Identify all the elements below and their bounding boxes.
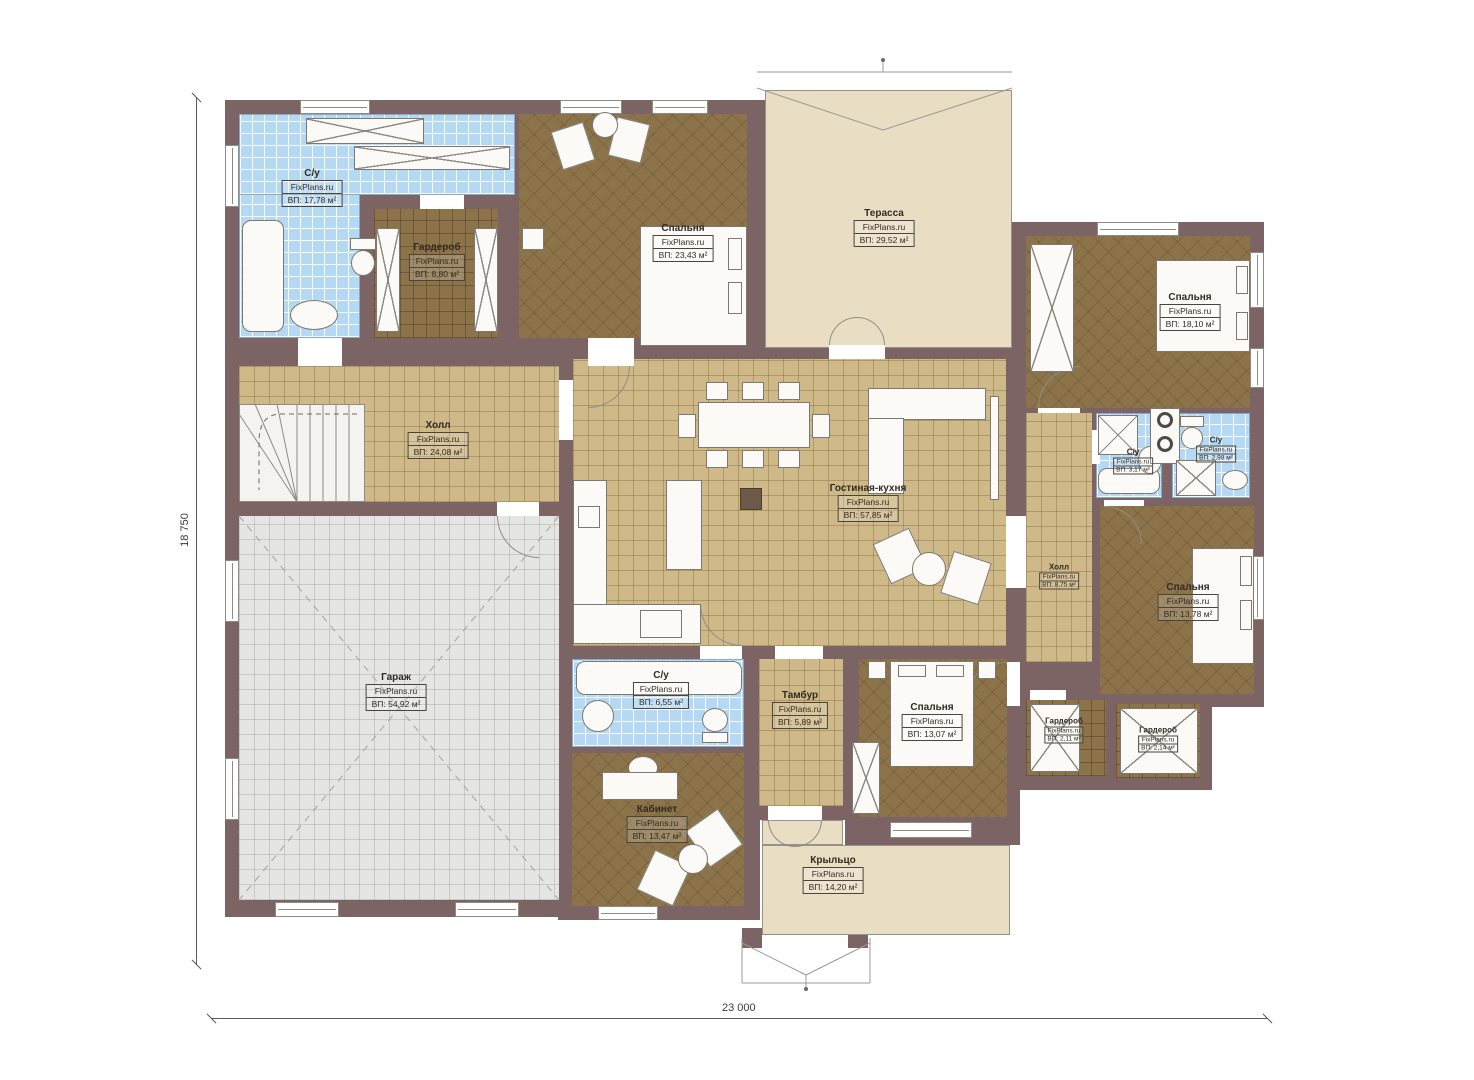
toilet-tank [350,238,376,250]
room-name: Кабинет [627,804,688,815]
wardrobe-cabinet [852,742,880,814]
chair [742,382,764,400]
room-name: С/у [1113,448,1153,457]
room-label-bathroom-655: С/у FixPlans.ruВП: 6,55 м² [633,670,689,710]
pillow [1236,312,1248,340]
staircase [239,404,365,502]
dining-table [698,402,810,448]
watermark: FixPlans.ru [1197,447,1235,455]
room-area: ВП: 2,14 м² [1139,745,1177,752]
toilet-bowl [351,250,375,276]
door-corridor-cabinet [700,646,742,659]
room-label-bathroom-298: С/у FixPlans.ruВП: 2,98 м² [1196,436,1236,465]
pillow [1236,266,1248,294]
room-area: ВП: 2,98 м² [1197,455,1235,462]
coffee-table [912,552,946,586]
room-area: ВП: 54,92 м² [367,698,426,710]
chair [706,382,728,400]
room-name: Гостиная-кухня [830,483,907,494]
watermark: FixPlans.ru [903,715,962,728]
window [300,100,370,114]
nightstand [978,661,996,679]
door-wardrobe-211 [1030,690,1066,700]
room-name: С/у [1196,436,1236,445]
opening-hall-living [559,380,573,440]
chair [678,414,696,438]
chair [778,450,800,468]
room-label-terrace: Терасса FixPlans.ruВП: 29,52 м² [854,208,915,248]
watermark: FixPlans.ru [628,817,687,830]
room-area: ВП: 24,08 м² [409,446,468,458]
watermark: FixPlans.ru [1040,574,1078,582]
room-area: ВП: 14,20 м² [804,881,863,893]
window [598,906,658,920]
porch-deck [762,845,1010,935]
nightstand [522,228,544,250]
watermark: FixPlans.ru [1045,728,1082,736]
closet [306,118,424,144]
tv-stand [990,396,999,500]
fireplace [740,488,762,510]
room-label-bathroom-1778: С/у FixPlans.ruВП: 17,78 м² [282,168,343,208]
room-area: ВП: 29,52 м² [855,234,914,246]
window [1250,252,1264,308]
kitchen-counter [573,480,607,606]
window [225,560,239,622]
room-label-hall-875: Холл FixPlans.ruВП: 8,75 м² [1039,563,1079,592]
room-name: Гардероб [1138,726,1178,735]
room-label-porch: Крыльцо FixPlans.ruВП: 14,20 м² [803,855,864,895]
room-label-tambour: Тамбур FixPlans.ruВП: 5,89 м² [772,690,828,730]
room-area: ВП: 5,89 м² [773,716,827,728]
room-label-cabinet: Кабинет FixPlans.ruВП: 13,47 м² [627,804,688,844]
window [225,145,239,207]
window [1250,348,1264,388]
wardrobe-cabinet [1030,244,1074,372]
pillow [936,665,964,677]
room-name: Гардероб [1044,717,1083,726]
sink [290,300,338,330]
room-area: ВП: 13,47 м² [628,830,687,842]
door-bedroom-1378 [1104,500,1144,506]
watermark: FixPlans.ru [839,496,898,509]
room-name: Холл [408,420,469,431]
door-tambour-living [775,646,823,659]
watermark: FixPlans.ru [409,433,468,446]
watermark: FixPlans.ru [367,685,426,698]
room-label-wardrobe-880: Гардероб FixPlans.ruВП: 8,80 м² [409,242,465,282]
closet [354,146,510,170]
opening-living-hall-right [1006,516,1026,588]
sink [582,700,614,732]
window [275,902,339,917]
room-area: ВП: 18,10 м² [1161,318,1220,330]
chair [742,450,764,468]
watermark: FixPlans.ru [1114,459,1152,467]
room-name: С/у [282,168,343,179]
floor-plan: С/у FixPlans.ruВП: 17,78 м² Гардероб Fix… [0,0,1474,1080]
room-name: Спальня [902,702,963,713]
wardrobe-cabinet [474,228,498,332]
room-label-bedroom-1378: Спальня FixPlans.ruВП: 13,78 м² [1158,582,1219,622]
watermark: FixPlans.ru [654,236,713,249]
watermark: FixPlans.ru [283,181,342,194]
washing-machine-drum [1157,412,1173,428]
floor-hall-875 [1026,413,1092,662]
window [1097,222,1179,236]
room-area: ВП: 8,80 м² [410,268,464,280]
pillow [1240,556,1252,586]
room-name: Холл [1039,563,1079,572]
sink [1222,470,1248,490]
room-area: ВП: 13,07 м² [903,728,962,740]
wardrobe-cabinet [376,228,400,332]
watermark: FixPlans.ru [634,683,688,696]
room-label-living-kitchen: Гостиная-кухня FixPlans.ruВП: 57,85 м² [830,483,907,523]
side-table [592,112,618,138]
kitchen-island [666,480,702,570]
bathtub [242,220,284,332]
watermark: FixPlans.ru [855,221,914,234]
room-name: С/у [633,670,689,681]
window [890,822,972,838]
desk [602,772,678,800]
watermark: FixPlans.ru [410,255,464,268]
door-bedroom-1810 [1038,408,1080,413]
door-wardrobe-880 [420,195,464,209]
kitchen-sink [578,506,600,528]
watermark: FixPlans.ru [1161,305,1220,318]
room-area: ВП: 17,78 м² [283,194,342,206]
nightstand [868,661,886,679]
coffee-table [678,844,708,874]
dimension-line-horizontal [211,1018,1267,1019]
room-area: ВП: 3,17 м² [1114,467,1152,474]
watermark: FixPlans.ru [804,868,863,881]
room-name: Терасса [854,208,915,219]
room-area: ВП: 8,75 м² [1040,582,1078,589]
room-name: Тамбур [772,690,828,701]
pillow [728,238,742,270]
room-label-bedroom-2343: Спальня FixPlans.ruВП: 23,43 м² [653,223,714,263]
chair [812,414,830,438]
pillow [1240,600,1252,630]
shower [1176,460,1216,496]
room-area: ВП: 13,78 м² [1159,608,1218,620]
stove [640,610,682,638]
door-terrace [829,345,885,359]
porch-roof-lines [735,925,880,997]
room-area: ВП: 2,11 м² [1045,736,1082,743]
toilet-tank [1180,416,1204,427]
chair [778,382,800,400]
watermark: FixPlans.ru [1139,737,1177,745]
room-name: Спальня [1158,582,1219,593]
watermark: FixPlans.ru [1159,595,1218,608]
dimension-height-label: 18 750 [179,513,191,547]
window [455,902,519,917]
door-bathroom-master [298,338,342,366]
window [560,100,622,114]
room-label-hall-2408: Холл FixPlans.ruВП: 24,08 м² [408,420,469,460]
room-label-bathroom-317: С/у FixPlans.ruВП: 3,17 м² [1113,448,1153,477]
sofa [868,388,986,420]
window [652,100,708,114]
dimension-line-vertical [196,97,197,965]
room-label-garage: Гараж FixPlans.ruВП: 54,92 м² [366,672,427,712]
room-name: Крыльцо [803,855,864,866]
room-area: ВП: 6,55 м² [634,696,688,708]
pillow [898,665,926,677]
dimension-width-label: 23 000 [722,1002,756,1014]
room-name: Гараж [366,672,427,683]
window [225,758,239,820]
room-name: Спальня [1160,292,1221,303]
room-area: ВП: 23,43 м² [654,249,713,261]
toilet-bowl [702,708,728,732]
door-bedroom-2343 [588,338,634,366]
room-label-bedroom-1307: Спальня FixPlans.ruВП: 13,07 м² [902,702,963,742]
floor-tambour [759,659,843,806]
room-name: Гардероб [409,242,465,253]
room-label-bedroom-1810: Спальня FixPlans.ruВП: 18,10 м² [1160,292,1221,332]
door-bedroom-1307 [1007,662,1020,706]
room-name: Спальня [653,223,714,234]
terrace-roof-lines [757,58,1012,136]
door-garage [497,502,539,516]
watermark: FixPlans.ru [773,703,827,716]
chair [706,450,728,468]
toilet-tank [702,732,728,743]
door-tambour-porch [768,806,822,820]
room-area: ВП: 57,85 м² [839,509,898,521]
room-label-wardrobe-214: Гардероб FixPlans.ruВП: 2,14 м² [1138,726,1178,755]
room-label-wardrobe-211: Гардероб FixPlans.ruВП: 2,11 м² [1044,717,1083,746]
pillow [728,282,742,314]
washing-machine-drum [1157,436,1173,452]
